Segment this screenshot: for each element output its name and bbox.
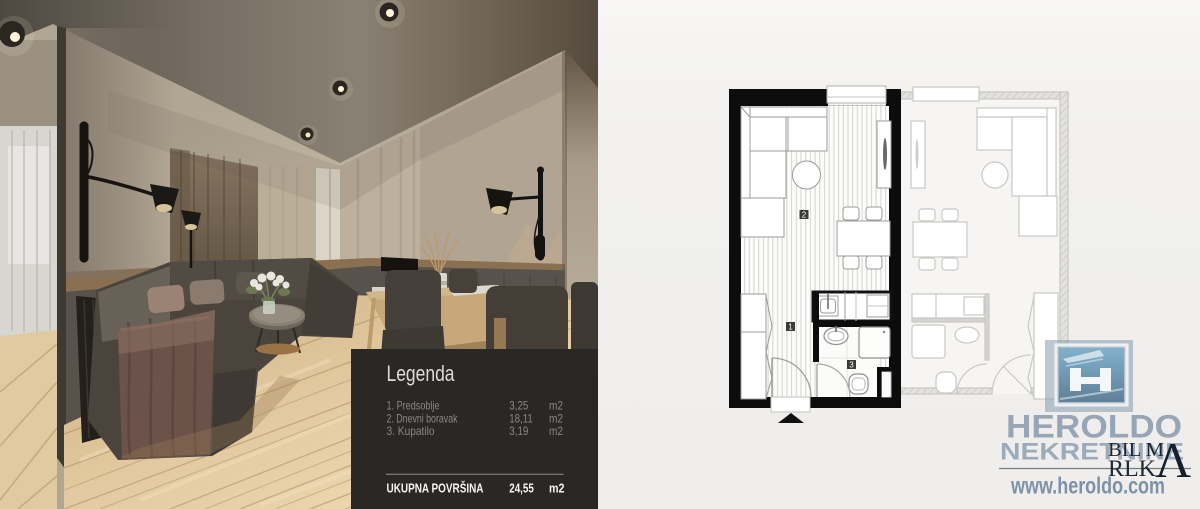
svg-text:3: 3 <box>849 361 854 370</box>
svg-text:1: 1 <box>788 323 793 332</box>
svg-text:www.heroldo.com: www.heroldo.com <box>1010 473 1165 499</box>
svg-text:2: 2 <box>802 211 807 220</box>
svg-text:Legenda: Legenda <box>387 361 456 386</box>
svg-text:3. Kupatilo: 3. Kupatilo <box>387 424 435 438</box>
svg-text:m2: m2 <box>549 481 565 496</box>
svg-text:24,55: 24,55 <box>509 481 534 496</box>
svg-text:3,19: 3,19 <box>509 424 528 438</box>
svg-text:m2: m2 <box>549 424 563 438</box>
svg-text:UKUPNA POVRŠINA: UKUPNA POVRŠINA <box>387 481 484 496</box>
